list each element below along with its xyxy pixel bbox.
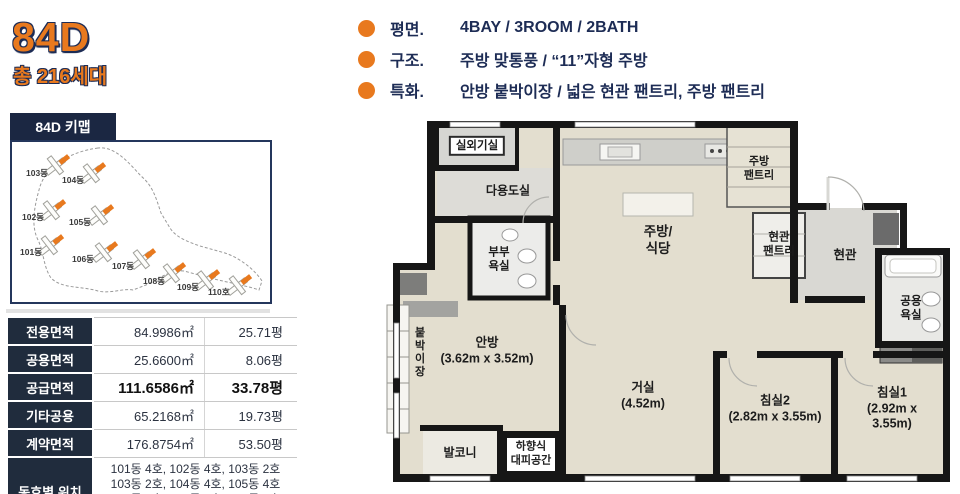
unit-locations: 101동 4호, 102동 4호, 103동 2호 103동 2호, 104동 …	[93, 457, 297, 494]
building-label: 105동	[69, 217, 91, 227]
row-label: 동호별 위치	[7, 457, 93, 494]
spec-label: 구조.	[390, 47, 452, 71]
spec-row-special: 특화. 안방 붙박이장 / 넓은 현관 팬트리, 주방 팬트리	[358, 79, 765, 101]
table-row: 기타공용 65.2168㎡ 19.73평	[7, 401, 297, 429]
room-label-balcony: 발코니	[443, 446, 476, 461]
room-label-living: 거실 (4.52m)	[621, 380, 665, 411]
building-label: 110호	[208, 287, 230, 297]
household-count: 총 216세대	[13, 60, 107, 89]
room-label-entry: 현관	[833, 248, 856, 264]
table-row-supply-area: 공급면적 111.6586㎡ 33.78평	[7, 373, 297, 401]
room-label-master-bath: 부부 욕실	[488, 246, 509, 275]
row-label: 공급면적	[7, 373, 93, 401]
room-label-entry-pantry: 현관 팬트리	[763, 231, 795, 260]
floor-plan: 실외기실 다용도실 부부 욕실 주방/ 식당 주방 팬트리 현관 팬트리 현관 …	[375, 113, 958, 492]
area-table: 전용면적 84.9986㎡ 25.71평 공용면적 25.6600㎡ 8.06평…	[6, 316, 297, 494]
room-label-common-bath: 공용 욕실	[900, 295, 921, 324]
table-row: 전용면적 84.9986㎡ 25.71평	[7, 317, 297, 345]
floor-plan-drawing	[375, 113, 958, 492]
brochure-page: 84D 총 216세대 84D 키맵 103동 104동 102동 105동 1…	[0, 0, 960, 494]
spec-value: 안방 붙박이장 / 넓은 현관 팬트리, 주방 팬트리	[460, 78, 765, 102]
table-top-divider	[6, 309, 270, 313]
spec-label: 특화.	[390, 78, 452, 102]
row-label: 기타공용	[7, 401, 93, 429]
row-label: 전용면적	[7, 317, 93, 345]
building-label: 109동	[177, 282, 199, 292]
building-label: 102동	[22, 212, 44, 222]
bullet-icon	[358, 20, 375, 37]
building-label: 103동	[26, 168, 48, 178]
area-m2: 84.9986㎡	[93, 317, 205, 345]
row-label: 공용면적	[7, 345, 93, 373]
area-pyeong: 53.50평	[205, 429, 298, 457]
spec-value: 4BAY / 3ROOM / 2BATH	[460, 19, 638, 37]
spec-list: 평면. 4BAY / 3ROOM / 2BATH 구조. 주방 맞통풍 / “1…	[358, 17, 765, 110]
building-label: 107동	[112, 261, 134, 271]
area-m2: 176.8754㎡	[93, 429, 205, 457]
table-row: 공용면적 25.6600㎡ 8.06평	[7, 345, 297, 373]
building-label: 104동	[62, 175, 84, 185]
room-label-kitchen-pantry: 주방 팬트리	[744, 155, 774, 183]
room-label-master-bedroom: 안방 (3.62m x 3.52m)	[440, 335, 533, 366]
spec-label: 평면.	[390, 16, 452, 40]
unit-type-title: 84D	[12, 14, 90, 61]
area-m2: 111.6586㎡	[93, 373, 205, 401]
room-label-kitchen-dining: 주방/ 식당	[644, 224, 673, 258]
room-label-bedroom1: 침실1 (2.92m x 3.55m)	[859, 386, 925, 433]
bullet-icon	[358, 82, 375, 99]
room-label-built-in-closet: 붙 박 이 장	[415, 327, 425, 379]
spec-row-structure: 구조. 주방 맞통풍 / “11”자형 주방	[358, 48, 765, 70]
building-label: 101동	[20, 247, 42, 257]
keymap-drawing: 103동 104동 102동 105동 101동 106동 107동 108동 …	[12, 142, 266, 298]
keymap-panel: 103동 104동 102동 105동 101동 106동 107동 108동 …	[10, 140, 272, 304]
room-label-outdoor-unit: 실외기실	[449, 136, 505, 156]
area-m2: 25.6600㎡	[93, 345, 205, 373]
bullet-icon	[358, 51, 375, 68]
keymap-title: 84D 키맵	[10, 113, 116, 140]
spec-value: 주방 맞통풍 / “11”자형 주방	[460, 47, 648, 71]
spec-row-plan: 평면. 4BAY / 3ROOM / 2BATH	[358, 17, 765, 39]
table-row-locations: 동호별 위치 101동 4호, 102동 4호, 103동 2호 103동 2호…	[7, 457, 297, 494]
building-label: 106동	[72, 254, 94, 264]
area-m2: 65.2168㎡	[93, 401, 205, 429]
row-label: 계약면적	[7, 429, 93, 457]
room-label-bedroom2: 침실2 (2.82m x 3.55m)	[728, 393, 821, 424]
table-row: 계약면적 176.8754㎡ 53.50평	[7, 429, 297, 457]
building-label: 108동	[143, 276, 165, 286]
area-pyeong: 19.73평	[205, 401, 298, 429]
room-label-utility: 다용도실	[486, 184, 530, 199]
area-pyeong: 33.78평	[205, 373, 298, 401]
area-pyeong: 8.06평	[205, 345, 298, 373]
room-label-evacuation: 하향식 대피공간	[511, 440, 551, 468]
area-pyeong: 25.71평	[205, 317, 298, 345]
